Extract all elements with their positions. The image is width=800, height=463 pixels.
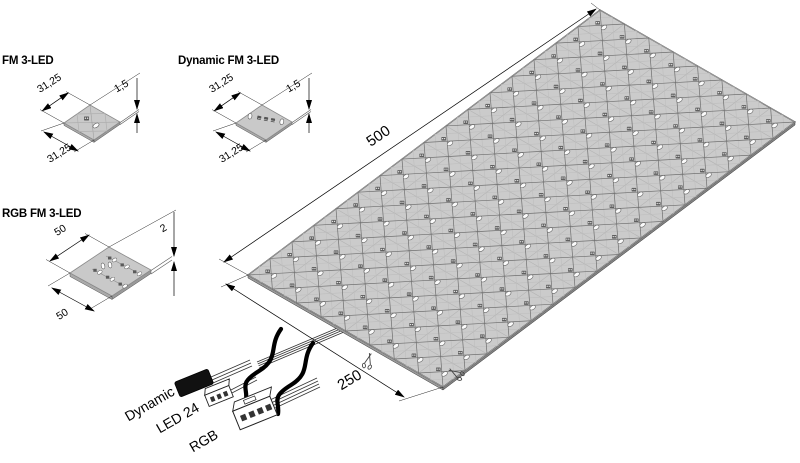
- cable-break-icon: [245, 329, 281, 400]
- module-dynamic-title: Dynamic FM 3-LED: [178, 55, 279, 67]
- module2-height-label: 1,5: [284, 77, 303, 95]
- module3-height-label: 2: [158, 222, 169, 235]
- module2-width-label: 31,25: [207, 71, 236, 95]
- module-fm-3-led: FM 3-LED 31,25 31,25 1,5: [2, 55, 140, 166]
- connector-rgb: [230, 387, 282, 430]
- module-rgb-fm-3-led: RGB FM 3-LED 50 5: [2, 208, 176, 323]
- module3-depth-label: 50: [54, 306, 70, 322]
- cable-harness: [211, 327, 343, 415]
- diagram-canvas: Dynamic LED 24 RGB 500 250 FM 3-LED: [0, 0, 800, 463]
- module-dynamic-fm-3-led: Dynamic FM 3-LED 31,25 31,25 1,5: [178, 55, 312, 166]
- module-rgb-title: RGB FM 3-LED: [2, 208, 81, 220]
- module-fm-3-led-title: FM 3-LED: [2, 55, 53, 67]
- scissors-icon: [361, 352, 375, 370]
- led-sheet-technical-drawing: Dynamic LED 24 RGB 500 250 FM 3-LED: [0, 0, 800, 463]
- module1-height-label: 1,5: [112, 77, 131, 95]
- module3-width-label: 50: [52, 222, 68, 238]
- panel-length-label: 500: [363, 122, 393, 150]
- panel-width-label: 250: [335, 366, 365, 393]
- label-connector-rgb: RGB: [186, 426, 220, 455]
- module1-depth-label: 31,25: [45, 141, 74, 165]
- module1-width-label: 31,25: [35, 71, 64, 95]
- module2-depth-label: 31,25: [217, 141, 246, 165]
